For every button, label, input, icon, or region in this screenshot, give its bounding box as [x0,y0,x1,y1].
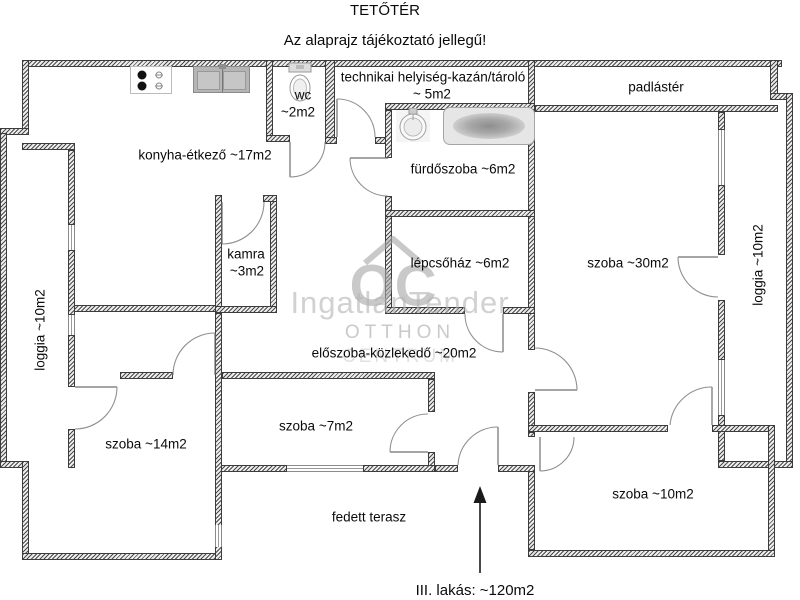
door-arc [535,348,577,390]
disclaimer: Az alaprajz tájékoztató jellegű! [284,33,487,50]
room-label-furdoszoba: fürdőszoba ~6m2 [411,163,516,178]
room-label-konyha: konyha-étkező ~17m2 [138,149,271,164]
door-arc [540,437,574,471]
room-label-kamra: kamra [227,248,265,263]
page-title: TETŐTÉR [350,3,420,20]
door-arc [222,202,264,244]
door-arc [458,427,498,465]
room-label-szoba-7: szoba ~7m2 [279,420,353,435]
door-arc [173,333,215,375]
floor-plan: OC IngatlanTender OTTHON CENTRUM TETŐTÉR… [0,0,800,600]
up-arrow-icon [474,486,487,573]
room-label-terasz: fedett terasz [332,511,406,526]
room-label-loggia-left: loggia ~10m2 [33,289,48,370]
door-arc [75,387,117,429]
room-label-loggia-right: loggia ~10m2 [751,224,766,305]
door-arc [390,414,428,452]
door-arc [337,99,375,137]
room-label-lepcsohaz: lépcsőház ~6m2 [411,257,510,272]
room-label-szoba-10: szoba ~10m2 [612,488,693,503]
door-arc [670,387,712,425]
room-label-technikai: technikai helyiség-kazán/tároló [341,71,526,86]
room-label-technikai-area: ~ 5m2 [413,88,451,103]
room-label-wc-area: ~2m2 [281,106,315,121]
room-label-padlaster: padlástér [628,81,684,96]
apartment-annotation: III. lakás: ~120m2 [416,583,535,600]
room-label-eloszoba: előszoba-közlekedő ~20m2 [312,347,477,362]
room-label-wc: wc [295,89,312,104]
room-label-kamra-area: ~3m2 [230,265,264,280]
door-arc [290,142,325,177]
room-label-szoba-14: szoba ~14m2 [105,438,186,453]
room-label-szoba-30: szoba ~30m2 [587,257,668,272]
door-arc [350,158,388,196]
door-arc [678,257,718,297]
